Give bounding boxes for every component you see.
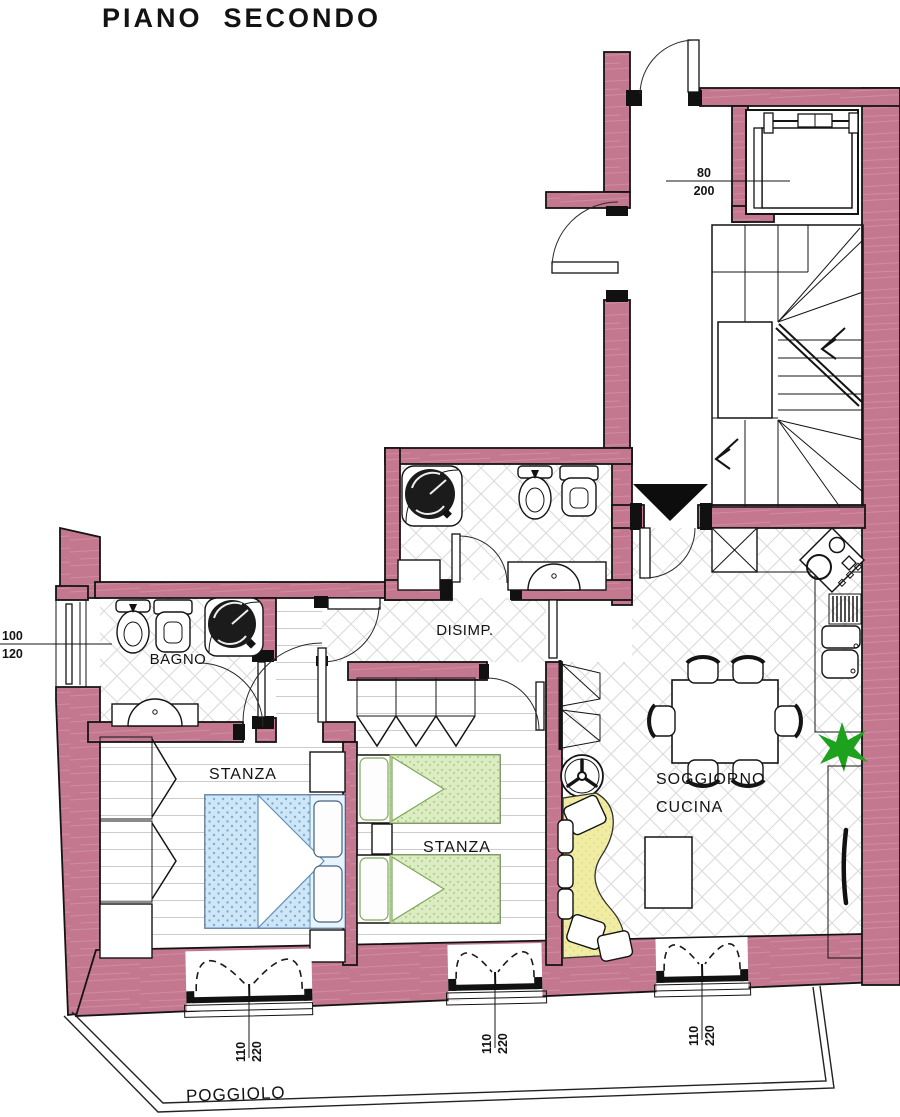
bidet-icon (518, 466, 552, 519)
chair-icon (732, 657, 764, 683)
room-label-cucina: CUCINA (656, 799, 723, 816)
single-bed-icon (357, 755, 500, 823)
chair-icon (687, 657, 719, 683)
room-label-bagno: BAGNO (150, 651, 207, 668)
elevator-icon (746, 110, 858, 214)
dim-height: 220 (496, 1033, 510, 1054)
double-bed-icon (205, 795, 345, 928)
bath-cabinet (398, 560, 440, 590)
dining-table-icon (672, 680, 778, 763)
room-label-poggiolo: POGGIOLO (186, 1083, 286, 1105)
dim-height: 200 (694, 184, 715, 198)
nightstand (372, 824, 392, 854)
dimension-bagno-window: 100 120 (2, 629, 23, 661)
dim-width: 110 (480, 1034, 494, 1054)
shower-icon (205, 598, 263, 656)
page-title: PIANO SECONDO (102, 3, 381, 33)
toilet-icon (560, 466, 598, 516)
room-label-stanza2: STANZA (423, 839, 491, 856)
shower-icon (402, 466, 462, 526)
dim-width: 110 (234, 1042, 248, 1062)
stair-landing (718, 322, 772, 418)
dim-width: 110 (687, 1026, 701, 1046)
bidet-icon (116, 600, 150, 653)
room-label-disimpegno: DISIMP. (436, 622, 493, 639)
dim-height: 220 (703, 1025, 717, 1046)
dim-width: 100 (2, 629, 23, 643)
floor-plan-drawing: 100 120 80 200 110 220 110 220 110 220 P… (0, 0, 900, 1117)
toilet-icon (154, 600, 192, 652)
room-label-soggiorno: SOGGIORNO (656, 771, 765, 788)
nightstand (310, 930, 345, 962)
chair-icon (775, 705, 801, 737)
dimension-balcony-door-1: 110 220 (234, 1002, 264, 1062)
room-label-stanza1: STANZA (209, 766, 277, 783)
dim-width: 80 (697, 166, 711, 180)
nightstand (310, 752, 345, 792)
chair-icon (649, 705, 675, 737)
staircase-icon (712, 225, 863, 507)
corridor-floor (276, 598, 322, 722)
single-bed-icon (357, 855, 500, 923)
french-door-2 (445, 943, 546, 1005)
kitchen-sink-icon (822, 626, 860, 678)
dim-height: 120 (2, 647, 23, 661)
dim-height: 220 (250, 1041, 264, 1062)
washbasin-icon (508, 562, 606, 590)
tv-cabinet (645, 837, 692, 908)
stairwell-side-door (552, 202, 628, 302)
round-table-icon (561, 755, 603, 797)
stairwell-top-door (626, 40, 702, 106)
fridge-cabinet (712, 528, 757, 572)
bagno-window (0, 600, 112, 687)
floor-plan-page: 100 120 80 200 110 220 110 220 110 220 P… (0, 0, 900, 1117)
sliding-door (549, 600, 557, 658)
french-door-1 (183, 949, 312, 1018)
